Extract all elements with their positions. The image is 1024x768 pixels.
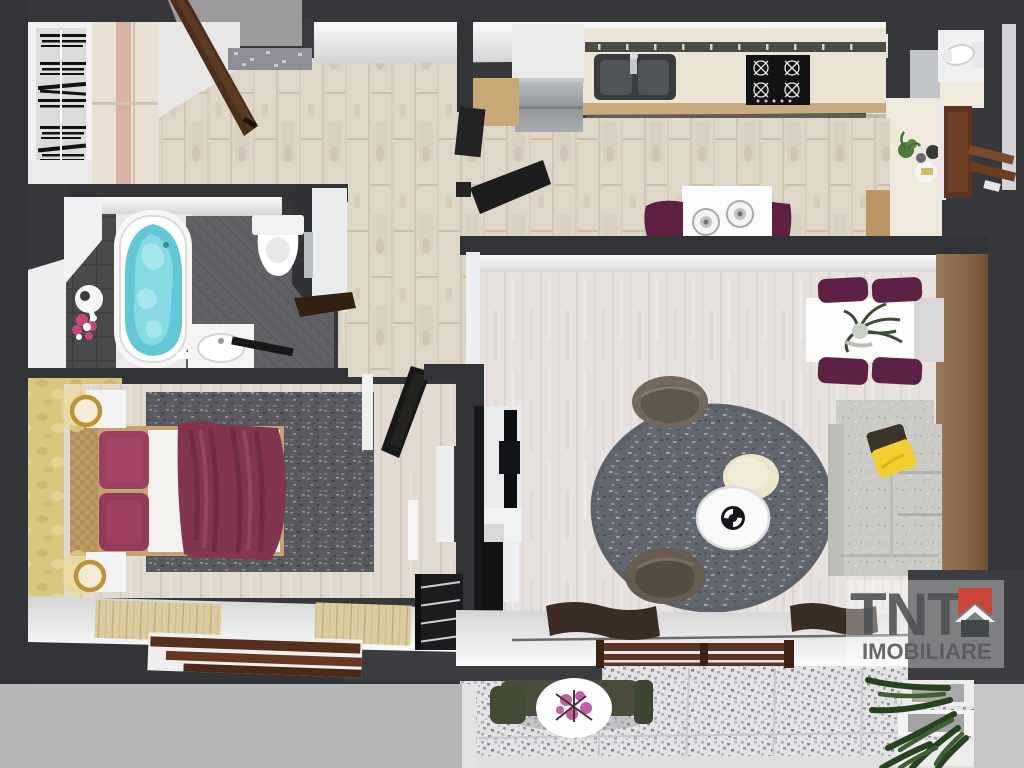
svg-text:IMOBILIARE: IMOBILIARE	[862, 639, 992, 664]
svg-text:TNT: TNT	[850, 581, 963, 648]
